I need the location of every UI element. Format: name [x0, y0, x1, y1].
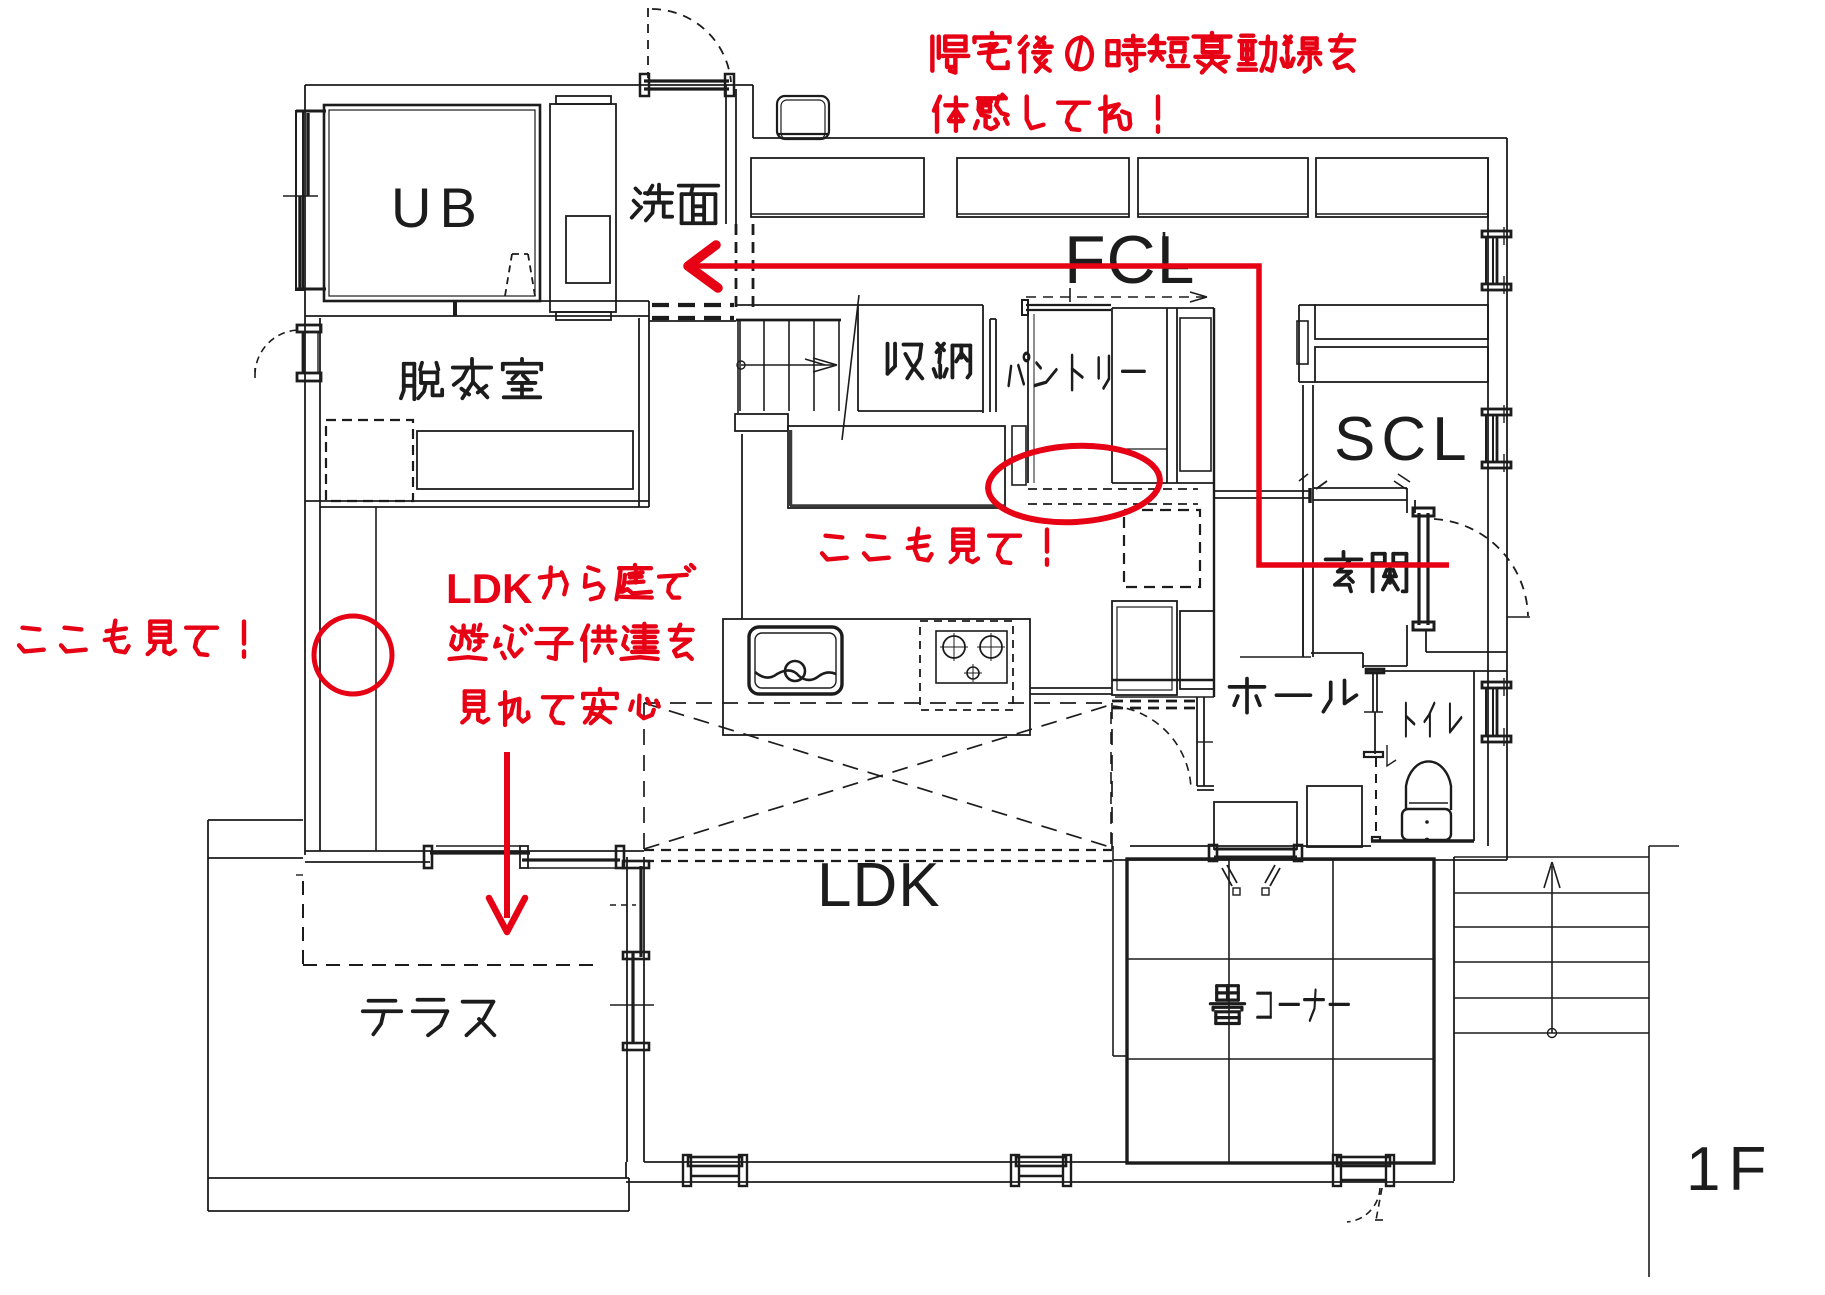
svg-text:SCL: SCL — [1334, 405, 1473, 474]
svg-text:1F: 1F — [1686, 1135, 1774, 1204]
svg-text:LDK: LDK — [817, 851, 941, 920]
svg-text:LDK: LDK — [446, 565, 532, 612]
svg-text:FCL: FCL — [1064, 222, 1195, 298]
svg-text:UB: UB — [391, 176, 485, 239]
